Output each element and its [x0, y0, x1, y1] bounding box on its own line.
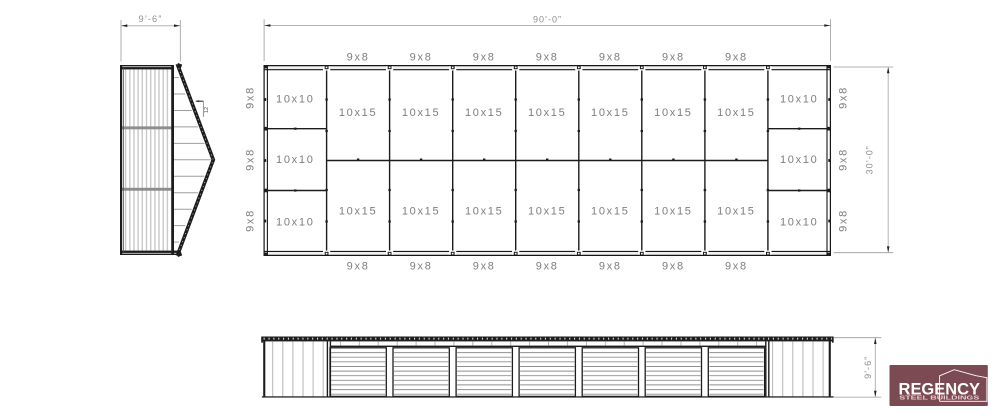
svg-text:10x10: 10x10 [780, 216, 818, 228]
svg-text:9x8: 9x8 [599, 51, 622, 63]
svg-text:9x8: 9x8 [725, 261, 748, 273]
svg-text:10x10: 10x10 [276, 216, 314, 228]
svg-text:10x15: 10x15 [591, 206, 629, 218]
svg-text:9x8: 9x8 [662, 51, 685, 63]
svg-text:9x8: 9x8 [837, 148, 849, 171]
svg-text:10x10: 10x10 [780, 93, 818, 105]
svg-text:10x15: 10x15 [717, 206, 755, 218]
svg-text:9x8: 9x8 [599, 261, 622, 273]
svg-text:30’-0”: 30’-0” [865, 145, 875, 174]
svg-text:10x15: 10x15 [339, 107, 377, 119]
svg-text:9x8: 9x8 [725, 51, 748, 63]
svg-text:STEEL BUILDINGS: STEEL BUILDINGS [899, 395, 980, 401]
svg-text:9x8: 9x8 [347, 261, 370, 273]
svg-text:10x10: 10x10 [780, 154, 818, 166]
svg-text:10x15: 10x15 [591, 107, 629, 119]
svg-text:10x15: 10x15 [717, 107, 755, 119]
svg-text:9’-6”: 9’-6” [139, 14, 163, 24]
svg-text:9x8: 9x8 [837, 209, 849, 232]
svg-text:9x8: 9x8 [245, 86, 257, 109]
svg-text:10x15: 10x15 [402, 107, 440, 119]
svg-text:9x8: 9x8 [536, 51, 559, 63]
svg-text:10x10: 10x10 [276, 154, 314, 166]
svg-text:10x15: 10x15 [654, 107, 692, 119]
svg-text:9x8: 9x8 [662, 261, 685, 273]
svg-text:9x8: 9x8 [837, 86, 849, 109]
svg-text:9x8: 9x8 [245, 148, 257, 171]
svg-text:10x15: 10x15 [402, 206, 440, 218]
svg-text:90’-0”: 90’-0” [533, 14, 562, 24]
svg-text:9’-6”: 9’-6” [863, 356, 873, 379]
svg-text:9x8: 9x8 [473, 51, 496, 63]
svg-text:10x15: 10x15 [528, 107, 566, 119]
svg-text:10x15: 10x15 [465, 206, 503, 218]
svg-text:10x15: 10x15 [528, 206, 566, 218]
svg-text:9x8: 9x8 [536, 261, 559, 273]
svg-text:10x10: 10x10 [276, 93, 314, 105]
svg-text:10x15: 10x15 [339, 206, 377, 218]
svg-text:9x8: 9x8 [245, 209, 257, 232]
svg-text:9x8: 9x8 [410, 51, 433, 63]
svg-text:9x8: 9x8 [473, 261, 496, 273]
svg-text:12: 12 [204, 107, 210, 113]
svg-text:9x8: 9x8 [410, 261, 433, 273]
svg-text:9x8: 9x8 [347, 51, 370, 63]
svg-text:10x15: 10x15 [654, 206, 692, 218]
svg-text:10x15: 10x15 [465, 107, 503, 119]
